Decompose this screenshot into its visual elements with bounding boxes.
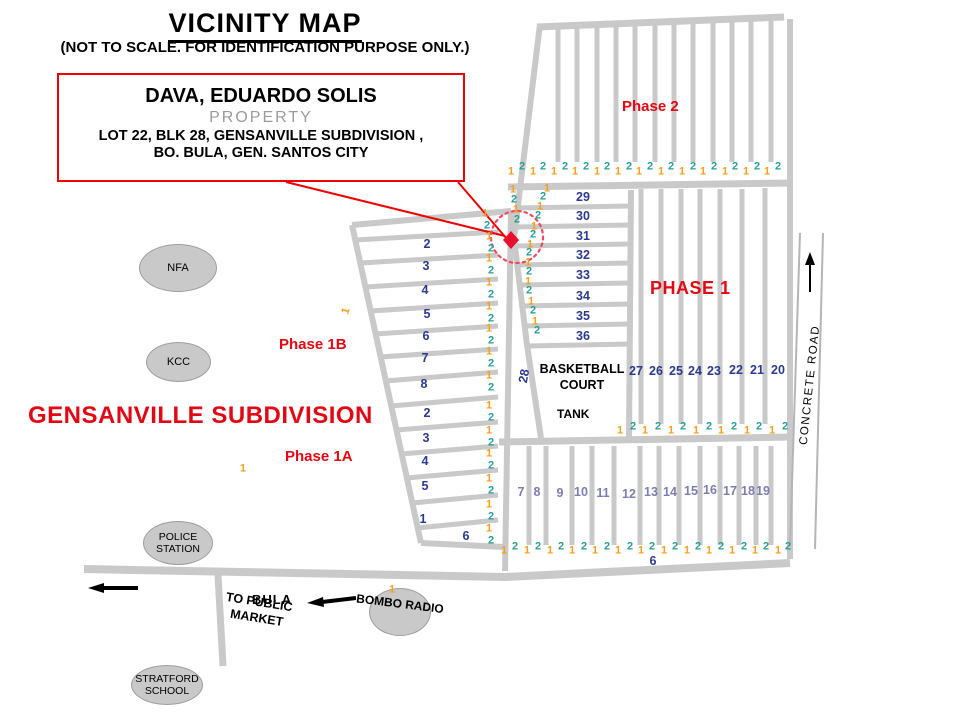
- vicinity-map: VICINITY MAP (NOT TO SCALE. FOR IDENTIFI…: [0, 0, 960, 720]
- subdivision-title: GENSANVILLE SUBDIVISION: [28, 402, 373, 430]
- phase1a-label: Phase 1A: [285, 448, 353, 465]
- property-lot-line: LOT 22, BLK 28, GENSANVILLE SUBDIVISION …: [59, 128, 463, 144]
- phase2-label: Phase 2: [622, 98, 679, 115]
- property-city-line: BO. BULA, GEN. SANTOS CITY: [59, 145, 463, 161]
- police-station-landmark: POLICE STATION: [143, 521, 213, 565]
- property-word: PROPERTY: [59, 109, 463, 127]
- property-owner: DAVA, EDUARDO SOLIS: [59, 85, 463, 108]
- road-28-label: 28: [516, 368, 532, 384]
- phase1b-label: Phase 1B: [279, 336, 347, 353]
- property-callout-box: DAVA, EDUARDO SOLIS PROPERTY LOT 22, BLK…: [57, 73, 465, 182]
- page-title: VICINITY MAP: [45, 8, 485, 43]
- basketball-court-label: BASKETBALL COURT: [534, 362, 630, 393]
- bombo-arrow-icon: [322, 598, 356, 602]
- kcc-landmark: KCC: [146, 342, 211, 382]
- phase1-label: PHASE 1: [650, 278, 731, 299]
- page-subtitle: (NOT TO SCALE. FOR IDENTIFICATION PURPOS…: [30, 39, 500, 56]
- nfa-landmark: NFA: [139, 244, 217, 292]
- tank-label: TANK: [557, 407, 589, 421]
- stratford-school-landmark: STRATFORD SCHOOL: [131, 665, 203, 705]
